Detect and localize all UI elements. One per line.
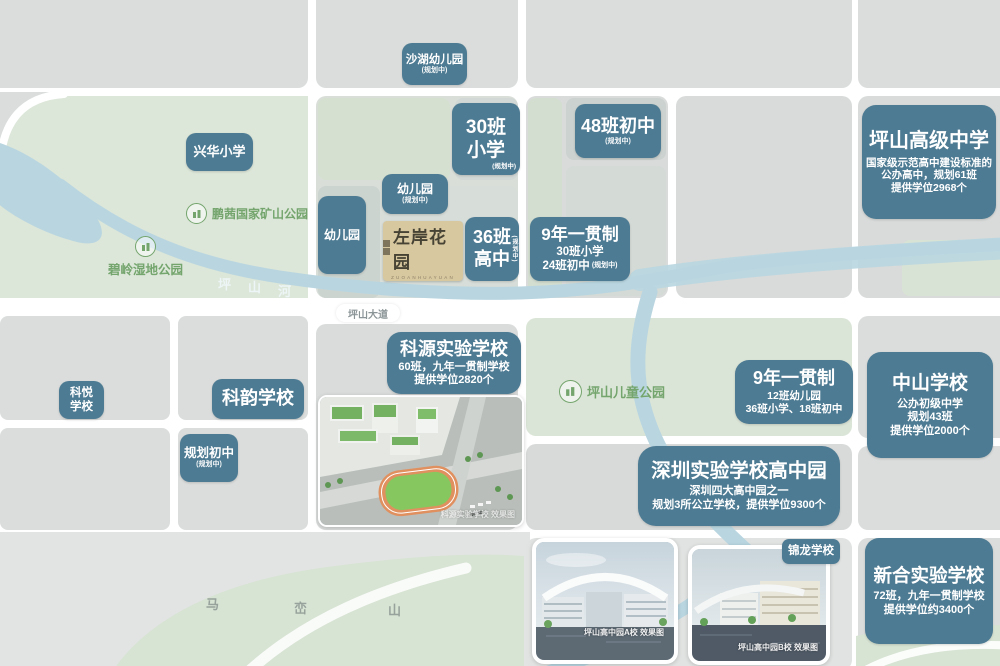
badge-keyue-school: 科悦 学校 [59,381,104,419]
badge-title: 科源实验学校 [400,339,508,361]
badge-desc: 提供学位2000个 [890,425,969,438]
photo-keyuan-render: 科源实验学校 效果图 [318,395,524,527]
badge-line: 科悦 [70,386,93,400]
badge-shahu-kindergarten: 沙湖幼儿园 (规划中) [402,43,467,85]
park-name: 鹏茜国家矿山公园 [212,205,308,222]
photo-campus-a: 坪山高中园A校 效果图 [532,538,678,664]
badge-title: 锦龙学校 [788,544,834,558]
badge-nine-year-school-a: 9年一贯制 30班小学 24班初中 (规划中) [530,217,630,281]
badge-sub: (规划中) [605,138,631,147]
park-icon [135,236,156,257]
badge-kindergarten-planned: 幼儿园 (规划中) [382,174,448,214]
logo-name: 左岸花园 [393,223,463,273]
badge-title: 新合实验学校 [873,565,984,588]
keyuan-aerial-illustration [320,397,522,525]
park-name: 碧岭湿地公园 [108,259,183,278]
badge-line: 高中 [474,249,510,271]
mountain-label-char: 马 [206,594,219,613]
badge-desc: 深圳四大高中园之一 [690,485,789,498]
road-label-pingshan-avenue: 坪山大道 [336,304,400,322]
badge-line: 36班 [473,227,511,249]
badge-title: 中山学校 [892,372,968,395]
mountain-label-char: 山 [388,600,401,619]
badge-desc: 规划43班 [907,411,952,424]
badge-xinhe-experimental: 新合实验学校 72班，九年一贯制学校 提供学位约3400个 [865,538,993,644]
logo-row: 左岸花园 [383,223,463,273]
badge-desc: 公办初级中学 [897,398,963,411]
badge-line: 小学 [467,139,505,162]
photo-caption: 坪山高中园A校 效果图 [584,627,664,638]
badge-pingshan-senior-high: 坪山高级中学 国家级示范高中建设标准的 公办高中，规划61班 提供学位2968个 [862,105,996,219]
badge-sub: (规划中) [422,67,448,76]
park-label-pengqian: 鹏茜国家矿山公园 [186,203,308,224]
badge-desc: 60班，九年一贯制学校 [398,361,509,374]
mountain-label-char: 峦 [294,598,307,617]
badge-desc: 提供学位2968个 [891,182,967,195]
badge-shenzhen-experimental-campus: 深圳实验学校高中园 深圳四大高中园之一 规划3所公立学校，提供学位9300个 [638,446,840,526]
river-label-char: 山 [248,277,261,296]
badge-zhongshan-school: 中山学校 公办初级中学 规划43班 提供学位2000个 [867,352,993,458]
river-label-char: 河 [278,281,291,300]
badge-nine-year-school-b: 9年一贯制 12班幼儿园 36班小学、18班初中 [735,360,853,424]
badge-title: 科韵学校 [222,388,294,410]
school-district-map: 科源实验学校 效果图 坪山高中园A校 效果图 [0,0,1000,666]
badge-48class-junior: 48班初中 (规划中) [575,104,661,158]
park-icon [559,380,582,403]
badge-xinghua-primary: 兴华小学 [186,133,253,171]
badge-jinlong-school: 锦龙学校 [782,539,840,564]
badge-line: 24班初中 [543,259,590,273]
badge-sub: (规划中) [592,262,618,271]
badge-desc: 12班幼儿园 [767,390,821,403]
badge-title: 48班初中 [581,116,655,138]
badge-desc: 提供学位2820个 [414,374,493,387]
badge-desc: 规划3所公立学校，提供学位9300个 [652,499,826,512]
badge-line: 30班小学 [556,245,603,259]
badge-desc: 36班小学、18班初中 [746,403,843,416]
badge-title: 深圳实验学校高中园 [651,460,827,484]
badge-36class-senior: 36班 高中 (规划中) [465,217,519,281]
badge-title: 幼儿园 [397,182,433,197]
logo-seal-mark [383,240,390,255]
badge-kindergarten: 幼儿园 [318,196,366,274]
badge-sub: (规划中) [510,236,517,263]
badge-desc: 公办高中，规划61班 [881,169,977,182]
logo-pinyin: ZUOANHUAYUAN [391,275,455,280]
badge-desc: 国家级示范高中建设标准的 [866,157,992,170]
park-label-children: 坪山儿童公园 [559,380,665,403]
badge-keyun-school: 科韵学校 [212,379,304,419]
badge-title: 9年一贯制 [753,368,835,390]
badge-planned-junior: 规划初中 (规划中) [180,434,238,482]
badge-title: 坪山高级中学 [869,129,989,153]
badge-line: 30班 [466,116,506,139]
badge-desc: 提供学位约3400个 [884,604,974,617]
river-label-char: 坪 [218,274,231,293]
badge-desc: 72班，九年一贯制学校 [873,590,984,603]
photo-caption: 科源实验学校 效果图 [441,509,515,520]
badge-title: 幼儿园 [324,228,360,243]
badge-title: 沙湖幼儿园 [406,53,464,67]
badge-line: 学校 [70,400,93,414]
badge-sub: (规划中) [402,197,428,206]
badge-sub: (规划中) [492,163,516,171]
badge-title: 兴华小学 [193,144,245,160]
badge-title: 9年一贯制 [541,225,618,246]
badge-keyuan-experimental: 科源实验学校 60班，九年一贯制学校 提供学位2820个 [387,332,521,394]
park-icon [186,203,207,224]
photo-caption: 坪山高中园B校 效果图 [738,642,818,653]
project-logo-zuoan-garden: 左岸花园 ZUOANHUAYUAN [383,221,463,281]
park-name: 坪山儿童公园 [587,382,665,401]
badge-sub: (规划中) [196,461,222,470]
park-label-biling: 碧岭湿地公园 [108,236,183,278]
campus-a-illustration [536,542,674,660]
badge-title: 规划初中 [184,446,234,461]
badge-30class-primary: 30班 小学 (规划中) [452,103,520,175]
